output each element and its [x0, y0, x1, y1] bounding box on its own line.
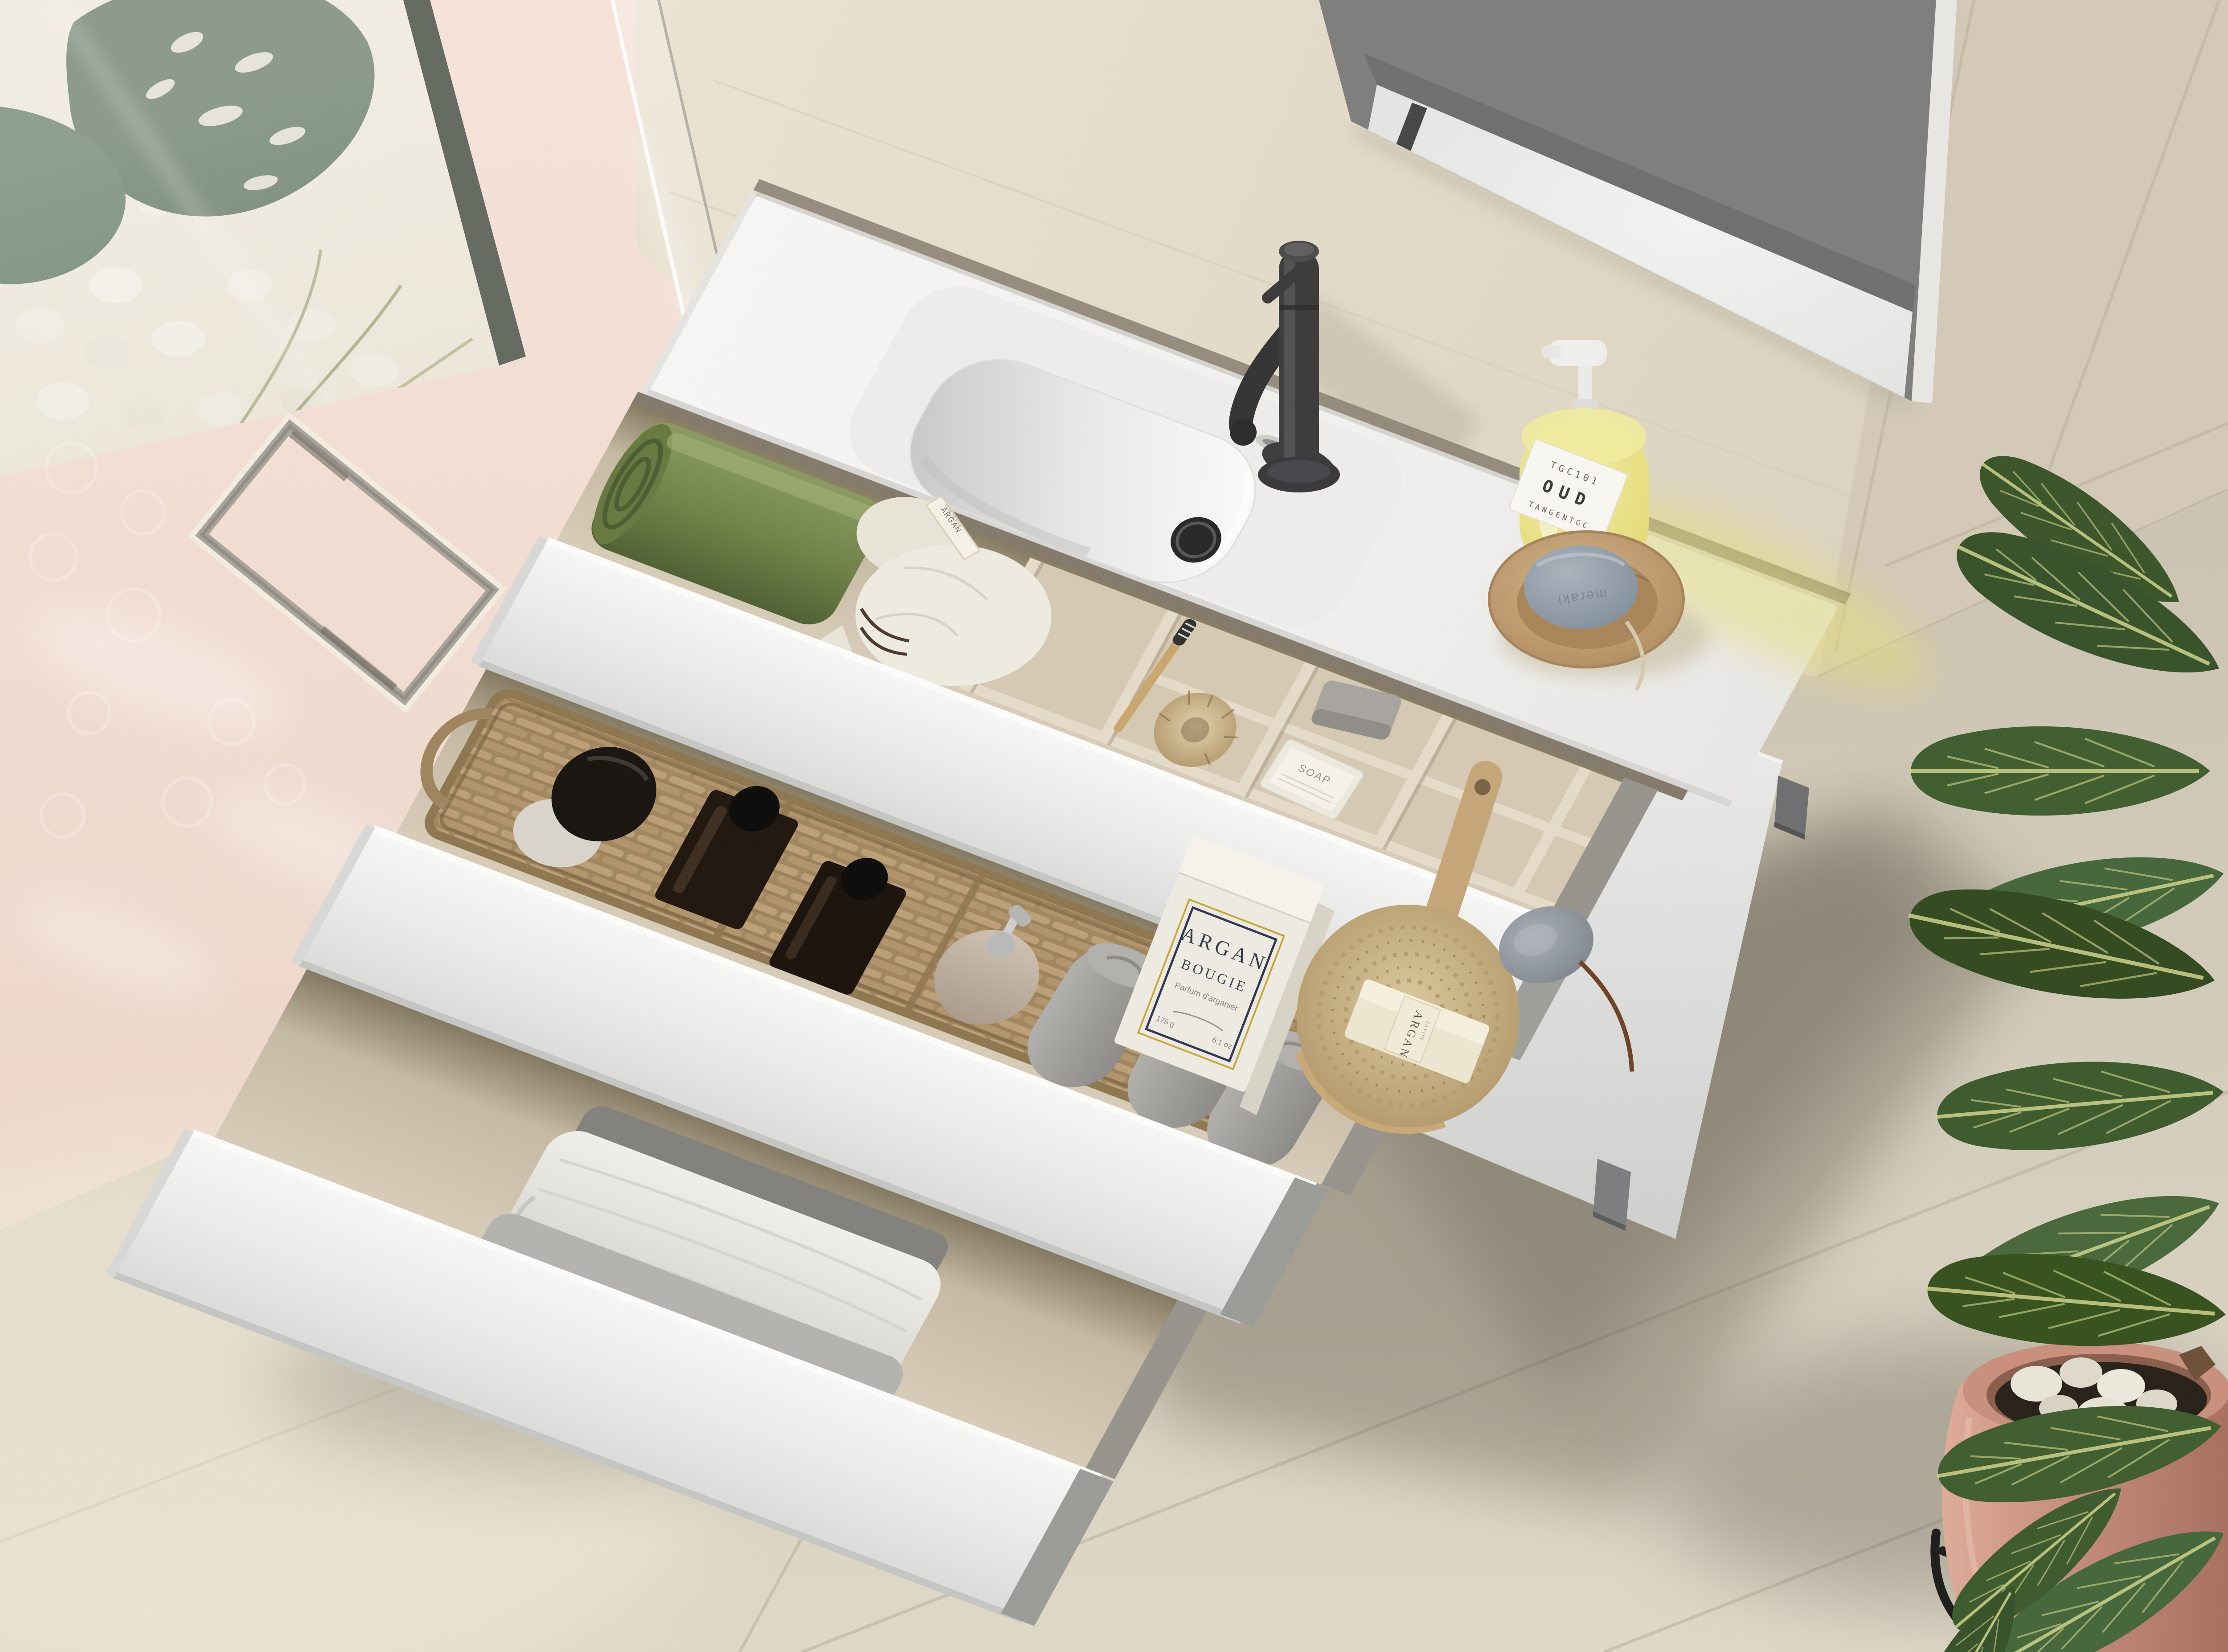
bathroom-scene: ?	[0, 0, 2228, 1652]
film-grain	[0, 0, 2228, 1652]
